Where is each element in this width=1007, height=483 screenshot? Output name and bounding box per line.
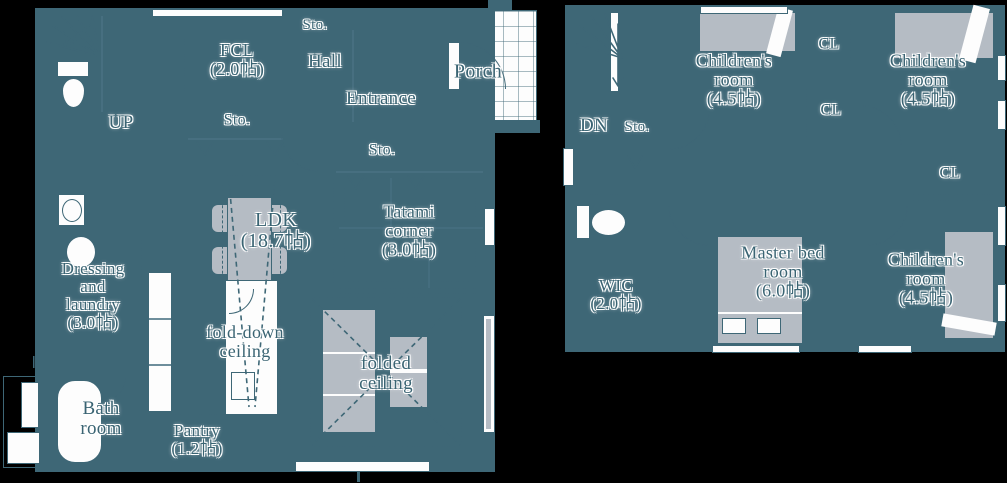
wic-door-dashed — [658, 272, 659, 312]
room-label-dressing: Dressing and laundry (3.0帖) — [62, 260, 125, 332]
room-label-children1: Children's room (4.5帖) — [696, 51, 772, 108]
fcl-hanger-hatch-1 — [203, 22, 219, 35]
cl3-door-dashed-1 — [906, 194, 997, 195]
room-label-sto-2f: Sto. — [625, 120, 650, 136]
room-label-sto-hall: Sto. — [303, 18, 328, 34]
room-label-pantry: Pantry (1.2帖) — [171, 422, 222, 458]
room-label-porch: Porch — [454, 61, 502, 82]
room-label-bath: Bath room — [80, 399, 121, 439]
window-2f-bottom-1 — [712, 345, 800, 353]
stairs-treads-1f — [103, 30, 150, 112]
water-heater-base — [7, 432, 40, 464]
bath-vent-louver — [33, 356, 89, 368]
toilet-tank-1f — [57, 61, 89, 77]
kitchen-counter-line-2 — [149, 364, 171, 366]
wall-stairs-right-2f — [657, 13, 665, 108]
wall-cl-mid — [798, 68, 862, 78]
room-label-tatami: Tatami corner (3.0帖) — [382, 202, 436, 259]
cl2-hatch-2 — [830, 126, 844, 138]
sofa-seam-2 — [323, 394, 375, 396]
wall-wic-right-lower — [655, 312, 663, 344]
wall-children3-top-l — [862, 196, 866, 204]
label-folded-ceiling: folded ceiling — [359, 354, 413, 394]
wall-corridor-top-left — [665, 148, 852, 156]
wall-porch-bottom — [483, 120, 540, 133]
room-label-ldk: LDK (18.7帖) — [241, 210, 311, 252]
tatami-left-dashed — [333, 178, 334, 288]
wall-cl3-left — [898, 148, 906, 202]
wall-porch-top-stub — [488, 0, 512, 10]
fcl-hanger-hatch-3 — [203, 84, 219, 97]
toilet2f-door-dashed — [583, 194, 625, 195]
cl1-door-dashed — [850, 16, 851, 66]
cl3-door-dashed-2 — [906, 200, 997, 201]
wall-wic-right-upper — [655, 252, 663, 272]
window-living-right-shade — [486, 319, 491, 429]
tatami-bottom-dashed-1 — [336, 288, 483, 289]
window-top-1f — [152, 9, 283, 17]
cl2-door-dashed — [806, 82, 807, 144]
room-label-sto-tatami: Sto. — [369, 143, 396, 160]
wall-fcl-bottom — [180, 96, 291, 105]
wall-stairs-right — [150, 16, 158, 151]
water-heater-tank — [21, 382, 39, 428]
window-2f-right-3 — [997, 206, 1006, 246]
fcl-curtain-dashed — [184, 32, 185, 98]
wall-pantry-right — [240, 414, 248, 464]
room-label-fcl: FCL (2.0帖) — [210, 41, 264, 79]
wall-master-children3 — [850, 196, 862, 344]
kitchen-counter-line-1 — [149, 318, 171, 320]
wall-dressing-right-lower — [138, 290, 146, 370]
cl2-hatch-1 — [812, 88, 826, 100]
room-label-sto-fcl: Sto. — [224, 113, 251, 130]
window-2f-right-4 — [997, 284, 1006, 322]
tatami-bottom-dashed-2 — [336, 293, 483, 294]
wall-fcl-right — [283, 16, 291, 140]
toilet-tank-2f — [576, 205, 590, 239]
wic-hatch-2 — [630, 256, 644, 268]
wic-hatch-3 — [578, 318, 592, 330]
stairs-divider-1f — [101, 16, 103, 112]
dressing-door-dashed — [45, 232, 138, 233]
wic-hatch-1 — [578, 258, 592, 270]
closet-label-cl3: CL — [939, 166, 960, 183]
cl3-hatch-1 — [912, 158, 926, 170]
wic-hatch-4 — [630, 316, 644, 328]
wall-bath-top — [43, 368, 152, 376]
washing-machine-drum — [62, 199, 82, 222]
wall-sto-tatami-left — [334, 126, 342, 172]
room-label-master: Master bed room (6.0帖) — [741, 243, 824, 300]
kitchen-counter — [148, 272, 172, 412]
cl3-hatch-2 — [972, 156, 986, 168]
wall-toilet2f-right — [655, 190, 663, 252]
window-2f-top — [700, 6, 788, 14]
window-2f-right-1 — [997, 55, 1006, 81]
master-bed-line — [718, 312, 802, 314]
master-pillow-1 — [722, 318, 746, 334]
fcl-hanger-hatch-4 — [261, 84, 277, 97]
wall-sto-hall-bottom — [286, 40, 346, 48]
floorplan-canvas: FCL (2.0帖) Sto. Hall Entrance Porch Sto.… — [0, 0, 1007, 483]
wall-sto2f-right — [657, 98, 665, 152]
room-label-children3: Children's room (4.5帖) — [888, 250, 964, 307]
window-2f-left — [563, 148, 574, 186]
tatami-edge-line — [336, 171, 483, 173]
wall-sto-tatami-right — [426, 126, 434, 172]
dressing-slide-door-dashed — [141, 235, 142, 290]
cl1-hatch-1 — [808, 22, 822, 34]
wall-toilet2f-bottom — [573, 244, 663, 252]
window-living-bottom — [295, 461, 430, 472]
room-label-children2: Children's room (4.5帖) — [890, 51, 966, 108]
closet-label-cl1: CL — [818, 37, 839, 54]
wall-toilet2f-top-l — [573, 190, 583, 198]
pantry-curtain-dashed — [155, 414, 230, 415]
wall-master-top-l — [663, 196, 666, 204]
wall-cl1-left — [798, 13, 806, 70]
wall-sto-fcl-left — [180, 96, 188, 140]
room-label-hall: Hall — [308, 52, 342, 72]
wall-corridor-top-right — [902, 148, 997, 156]
label-fold-down-ceiling: fold-down ceiling — [206, 323, 284, 361]
window-2f-right-2 — [997, 100, 1006, 130]
window-2f-bottom-2 — [858, 345, 912, 353]
window-tatami-right — [484, 208, 495, 246]
wall-dressing-right-upper — [138, 151, 146, 235]
room-label-wic: WIC (2.0帖) — [590, 277, 641, 313]
stairs-rail-2f — [610, 13, 619, 91]
stairs-up-label: UP — [109, 113, 134, 133]
room-label-entrance: Entrance — [346, 89, 416, 109]
toilet-bowl-2f — [591, 209, 626, 236]
stairs-dn-label: DN — [580, 116, 608, 136]
wall-master-top-r — [710, 196, 850, 204]
sto-fcl-counter-line — [188, 138, 283, 140]
closet-label-cl2: CL — [820, 103, 841, 120]
master-pillow-2 — [757, 318, 781, 334]
fcl-hanger-hatch-2 — [261, 22, 277, 35]
